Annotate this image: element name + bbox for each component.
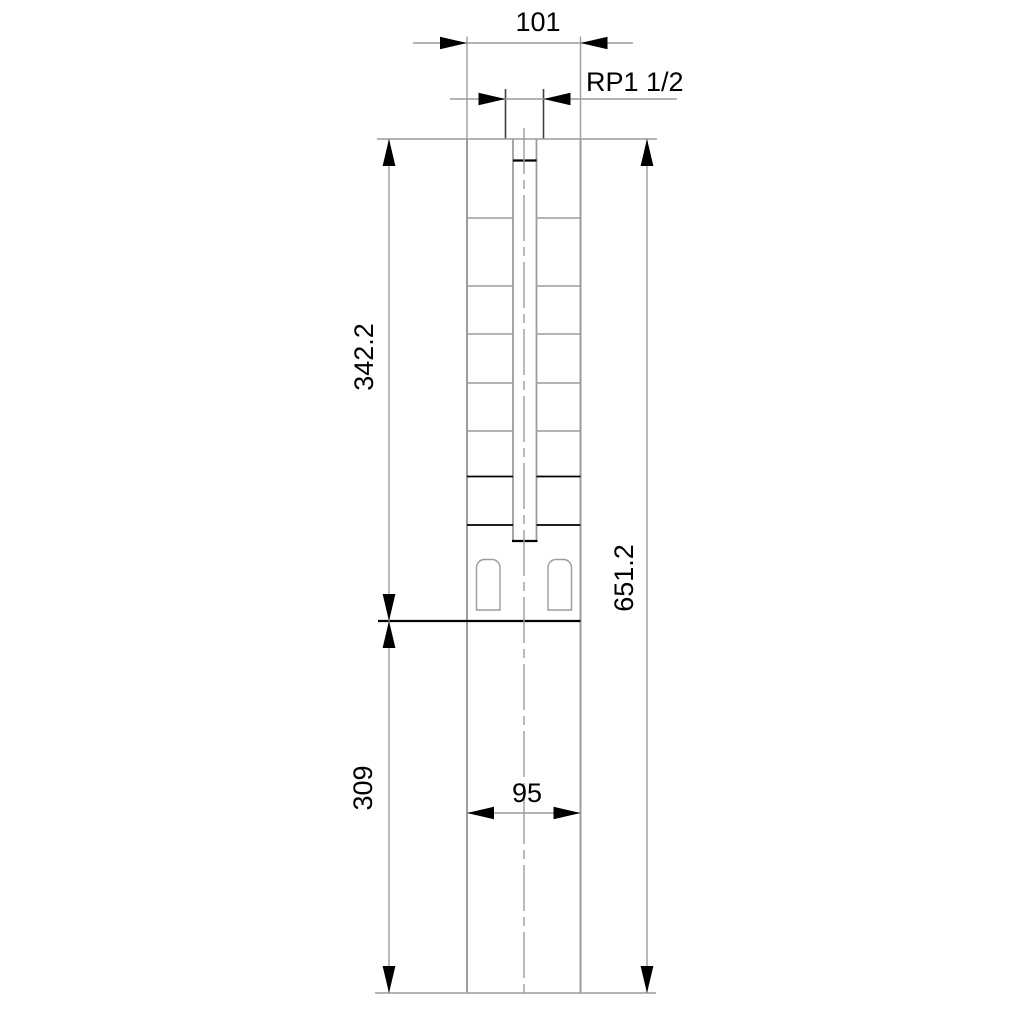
arrow-left-icon [581,37,608,49]
arrow-down-icon [383,966,396,993]
dim-label-motor-section-length: 309 [347,718,379,858]
arrow-up-icon [383,139,396,166]
dim-label-overall-length: 651.2 [608,508,640,648]
suction-slot-left [477,560,501,611]
riser-pipe-details [512,161,538,542]
dimension-overall-length [641,139,654,993]
dimension-left-column [383,139,396,993]
arrow-right-icon [479,93,506,105]
pump-dimension-drawing [0,0,1024,1024]
arrow-left-icon [544,93,571,105]
arrow-up-icon [383,621,396,648]
suction-slot-right [548,560,572,611]
dim-label-pump-section-length: 342.2 [348,287,380,427]
dim-label-top-width: 101 [468,6,608,38]
arrow-up-icon [641,139,654,166]
arrow-down-icon [383,594,396,621]
dim-label-thread: RP1 1/2 [586,66,756,98]
technical-drawing-page: 101 RP1 1/2 342.2 651.2 309 95 [0,0,1024,1024]
arrow-right-icon [440,37,467,49]
dim-label-motor-width: 95 [457,777,597,809]
arrow-down-icon [641,966,654,993]
